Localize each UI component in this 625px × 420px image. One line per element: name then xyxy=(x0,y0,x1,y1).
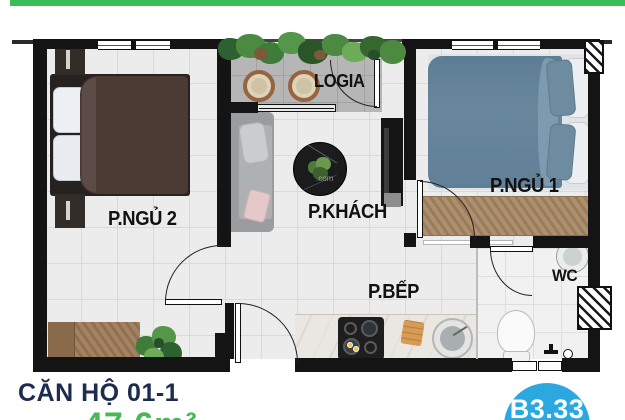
logia-rail xyxy=(226,102,258,113)
room-label-bedroom2: P.NGỦ 2 xyxy=(108,208,177,231)
nightstand-top-handle xyxy=(66,50,70,69)
burner-1 xyxy=(344,322,357,335)
top-accent-bar xyxy=(10,0,625,6)
bedroom2-window xyxy=(98,40,170,50)
wall-bottom-left xyxy=(33,357,230,372)
egg-2 xyxy=(353,346,359,352)
outer-edge-line xyxy=(12,40,35,44)
wash-basin-bowl xyxy=(563,247,582,266)
shaft-top-right xyxy=(584,40,604,74)
wall-bottom-mid xyxy=(295,358,512,372)
wall-stub-bedroom2-lower xyxy=(215,333,234,359)
wall-wc-right xyxy=(533,236,600,248)
shaft-wc xyxy=(577,286,612,330)
entry-threshold-2 xyxy=(538,361,562,371)
bed2-blanket xyxy=(80,76,188,194)
kitchen-wc-partition xyxy=(476,248,478,359)
logia-chair-1-seat xyxy=(251,78,267,94)
wall-bedroom2-living xyxy=(217,48,231,247)
room-label-wc: WC xyxy=(552,266,577,286)
unit-badge-code: B3.33 xyxy=(504,394,590,420)
egg-1 xyxy=(347,342,353,348)
wall-stub-bedroom2-upper xyxy=(225,303,234,335)
floorplan-image: .com xyxy=(0,0,625,420)
watermark-text: .com xyxy=(316,174,333,183)
burner-pot xyxy=(361,320,378,337)
logia-sliding-door xyxy=(257,104,336,112)
cutting-board xyxy=(400,320,424,347)
bed1-pillow-blue-top xyxy=(546,59,577,117)
logia-chair-2-seat xyxy=(296,78,312,94)
nightstand-bottom-handle xyxy=(66,201,70,220)
desk-drawers xyxy=(48,322,75,360)
wall-left xyxy=(33,39,47,372)
wardrobe-threshold xyxy=(423,240,513,245)
bedroom1-window xyxy=(452,40,540,50)
toilet-bowl xyxy=(497,310,535,354)
burner-2 xyxy=(364,341,377,354)
entry-threshold-1 xyxy=(512,361,537,371)
unit-badge: B3.33 xyxy=(504,383,590,420)
wall-bottom-right xyxy=(562,358,600,372)
nightstand-bottom xyxy=(55,194,85,228)
balcony-plants xyxy=(218,32,406,70)
wall-stub-bedroom1 xyxy=(404,233,416,247)
bed2-blanket-fold xyxy=(82,78,96,192)
bed1-pillow-blue-bottom xyxy=(546,123,577,181)
room-label-kitchen: P.BẾP xyxy=(368,281,419,304)
tv-screen xyxy=(384,128,389,194)
room-label-bedroom1: P.NGỦ 1 xyxy=(490,175,559,198)
shower-mixer-stem xyxy=(549,344,553,354)
unit-area: 47.6m² xyxy=(84,406,198,420)
room-label-living: P.KHÁCH xyxy=(308,201,387,224)
unit-title: CĂN HỘ 01-1 xyxy=(18,379,179,408)
room-label-logia: LOGIA xyxy=(314,71,365,92)
